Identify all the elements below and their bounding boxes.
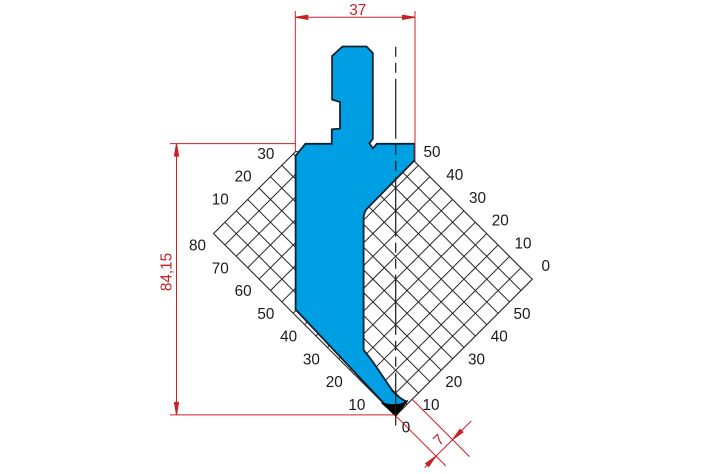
svg-text:0: 0	[402, 419, 411, 436]
svg-text:37: 37	[349, 2, 366, 19]
svg-text:10: 10	[514, 235, 531, 252]
svg-text:20: 20	[492, 213, 509, 230]
svg-text:50: 50	[513, 306, 530, 323]
svg-text:50: 50	[423, 144, 440, 161]
svg-text:10: 10	[348, 397, 365, 414]
svg-text:50: 50	[257, 306, 274, 323]
svg-text:0: 0	[542, 258, 551, 275]
svg-text:70: 70	[212, 260, 229, 277]
svg-text:30: 30	[257, 146, 274, 163]
svg-text:20: 20	[326, 374, 343, 391]
svg-text:40: 40	[280, 329, 297, 346]
svg-text:40: 40	[446, 167, 463, 184]
svg-text:40: 40	[491, 329, 508, 346]
svg-text:84,15: 84,15	[158, 253, 175, 291]
svg-text:30: 30	[468, 351, 485, 368]
svg-text:10: 10	[212, 192, 229, 209]
svg-text:20: 20	[235, 169, 252, 186]
svg-text:10: 10	[422, 397, 439, 414]
svg-text:30: 30	[303, 351, 320, 368]
svg-text:80: 80	[189, 238, 206, 255]
svg-text:20: 20	[445, 374, 462, 391]
svg-text:30: 30	[469, 190, 486, 207]
svg-text:60: 60	[235, 283, 252, 300]
